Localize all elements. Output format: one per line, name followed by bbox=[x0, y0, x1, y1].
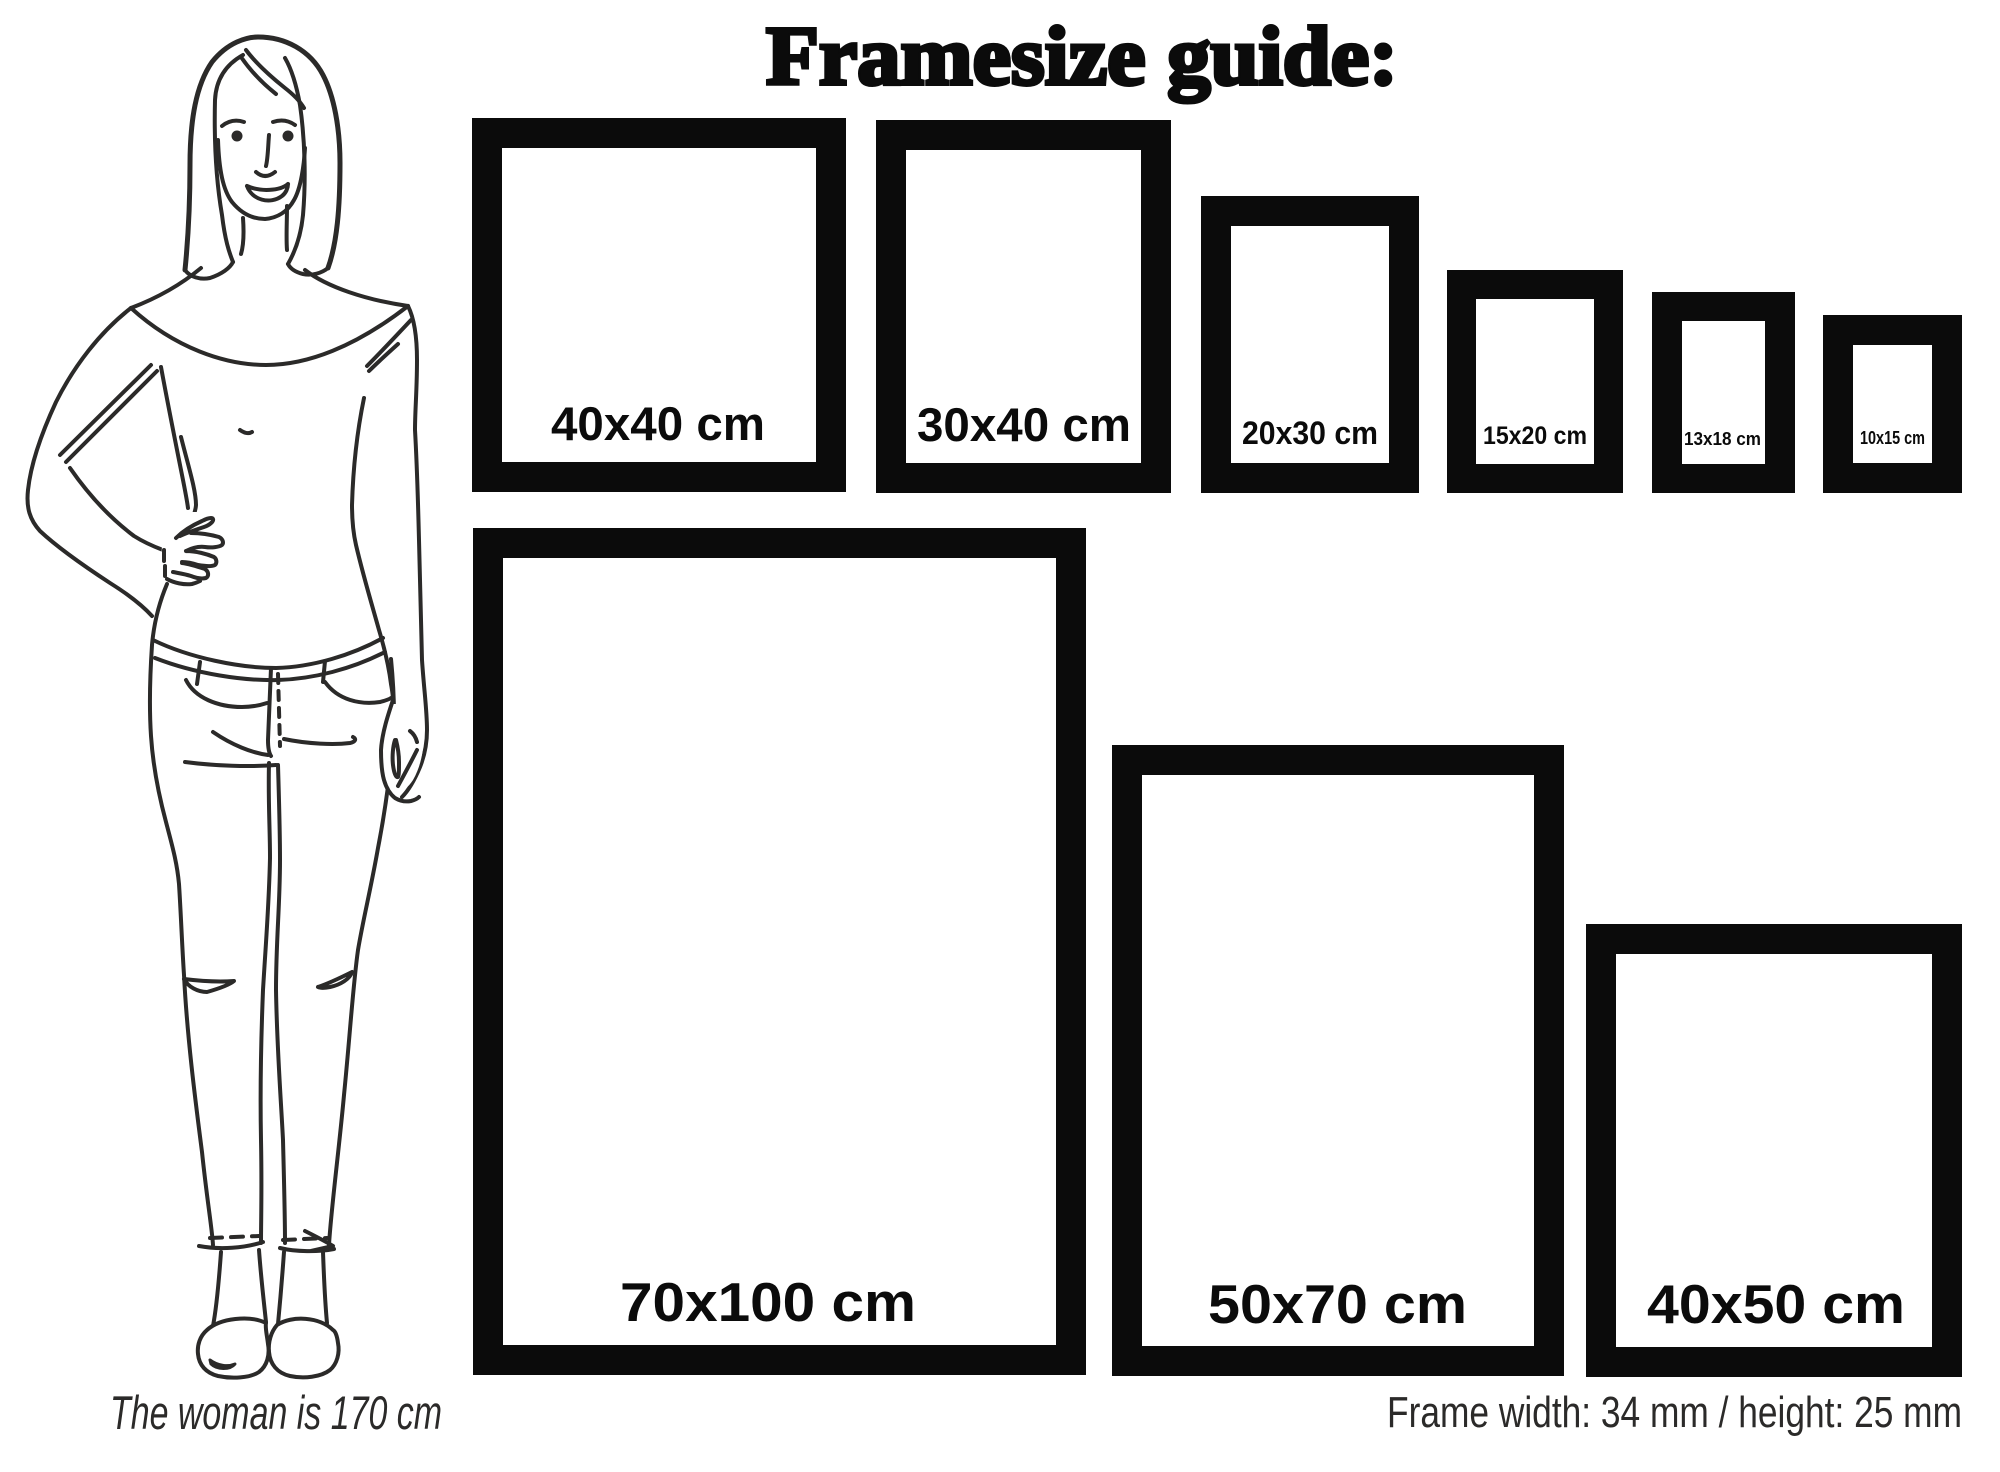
svg-text:Framesize guide:: Framesize guide: bbox=[766, 10, 1398, 103]
svg-text:The woman is 170 cm: The woman is 170 cm bbox=[110, 1386, 442, 1439]
svg-text:40x50 cm: 40x50 cm bbox=[1647, 1273, 1905, 1335]
svg-text:40x40 cm: 40x40 cm bbox=[551, 397, 765, 450]
svg-text:50x70 cm: 50x70 cm bbox=[1208, 1273, 1467, 1335]
svg-text:15x20 cm: 15x20 cm bbox=[1483, 422, 1587, 450]
svg-text:Frame width: 34 mm / height: 2: Frame width: 34 mm / height: 25 mm bbox=[1387, 1388, 1962, 1437]
svg-text:13x18 cm: 13x18 cm bbox=[1684, 429, 1761, 449]
svg-text:20x30 cm: 20x30 cm bbox=[1242, 415, 1378, 451]
svg-text:10x15 cm: 10x15 cm bbox=[1860, 428, 1925, 448]
svg-text:30x40 cm: 30x40 cm bbox=[917, 398, 1131, 451]
svg-text:70x100 cm: 70x100 cm bbox=[620, 1271, 916, 1333]
